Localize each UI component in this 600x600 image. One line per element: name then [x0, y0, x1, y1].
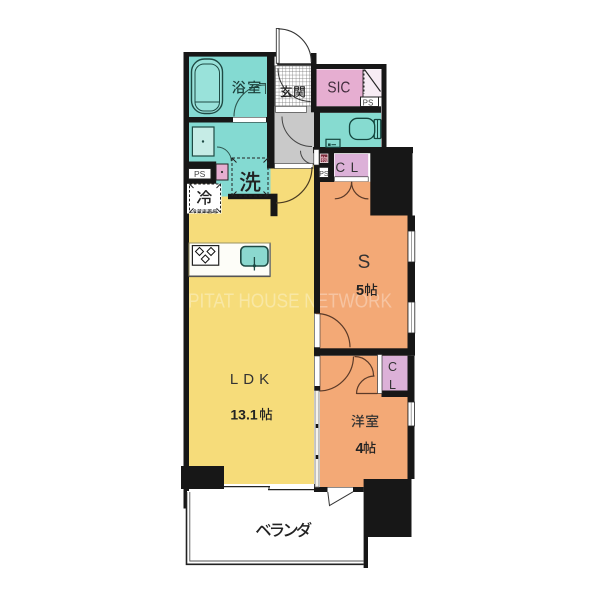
svg-text:SIC: SIC: [327, 79, 350, 96]
svg-text:PS: PS: [363, 98, 374, 107]
svg-text:LDK: LDK: [230, 371, 274, 388]
svg-text:4: 4: [355, 441, 363, 457]
svg-text:CL: CL: [335, 160, 363, 175]
svg-text:PS: PS: [319, 169, 329, 178]
svg-text:5: 5: [356, 283, 364, 299]
svg-text:PS: PS: [194, 169, 206, 179]
svg-text:13.1: 13.1: [230, 407, 257, 423]
svg-text:L: L: [389, 378, 396, 392]
svg-text:S: S: [358, 252, 371, 273]
svg-text:C: C: [388, 360, 397, 374]
